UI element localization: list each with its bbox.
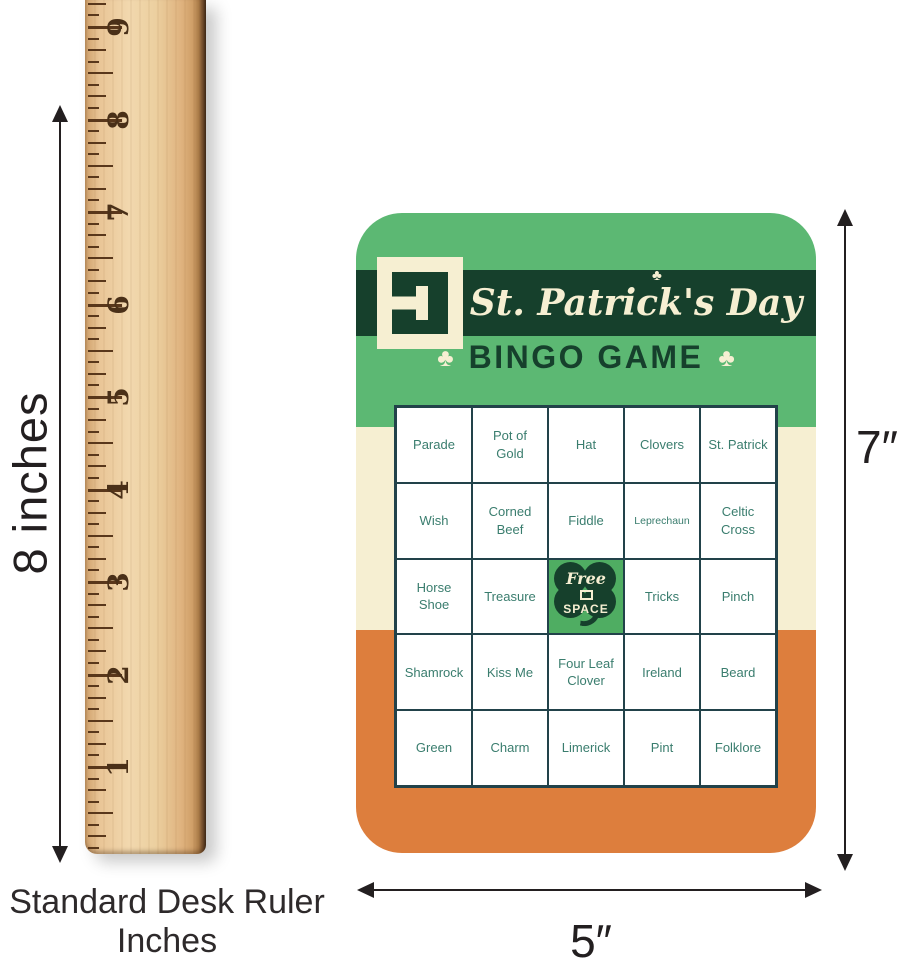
wooden-ruler: 123456789 — [85, 0, 206, 854]
ruler-tick — [88, 49, 106, 51]
bingo-card: St. Patrick's Day ♣ ♣ BINGO GAME ♣ Parad… — [356, 213, 816, 853]
shamrock-icon: ♣ — [652, 267, 662, 284]
free-space-cell: FreeSPACE — [548, 559, 624, 635]
ruler-tick — [88, 789, 106, 791]
ruler-tick — [88, 442, 113, 444]
ruler-tick — [88, 835, 106, 837]
ruler-inch-number: 4 — [101, 468, 137, 512]
ruler-caption: Standard Desk Ruler Inches — [0, 883, 334, 961]
ruler-tick — [88, 743, 106, 745]
ruler-tick — [88, 477, 99, 479]
arrowhead-right-icon — [805, 882, 822, 898]
bingo-cell: Limerick — [548, 710, 624, 786]
ruler-tick — [88, 419, 106, 421]
bingo-cell: Four Leaf Clover — [548, 634, 624, 710]
bingo-cell: Ireland — [624, 634, 700, 710]
ruler-tick — [88, 801, 99, 803]
card-width-label: 5″ — [549, 914, 633, 968]
bingo-cell: Pint — [624, 710, 700, 786]
bingo-cell: Parade — [396, 407, 472, 483]
ruler-tick — [88, 639, 99, 641]
ruler-tick — [88, 84, 99, 86]
card-width-arrow-line — [372, 889, 806, 891]
ruler-tick — [88, 153, 99, 155]
bingo-cell: Corned Beef — [472, 483, 548, 559]
ruler-tick — [88, 454, 99, 456]
bingo-cell: Charm — [472, 710, 548, 786]
ruler-tick — [88, 754, 99, 756]
ruler-tick — [88, 500, 99, 502]
ruler-tick — [88, 130, 99, 132]
ruler-tick — [88, 731, 99, 733]
ruler-tick — [88, 812, 113, 814]
card-title: St. Patrick's Day — [460, 270, 812, 336]
ruler-tick — [88, 685, 99, 687]
ruler-tick — [88, 107, 99, 109]
free-space-line2: SPACE — [563, 601, 608, 617]
ruler-tick — [88, 292, 99, 294]
ruler-inch-number: 1 — [101, 745, 137, 789]
card-height-arrow-line — [844, 224, 846, 856]
bingo-grid: ParadePot of GoldHatCloversSt. PatrickWi… — [394, 405, 778, 788]
ruler-inch-number: 2 — [101, 653, 137, 697]
bingo-cell: Pot of Gold — [472, 407, 548, 483]
ruler-tick — [88, 350, 113, 352]
ruler-tick — [88, 604, 106, 606]
ruler-tick — [88, 61, 99, 63]
mini-buckle-icon — [580, 590, 593, 600]
ruler-inch-number: 5 — [101, 375, 137, 419]
ruler-tick — [88, 14, 99, 16]
ruler-tick — [88, 569, 99, 571]
ruler-tick — [88, 3, 106, 5]
ruler-tick — [88, 778, 99, 780]
ruler-tick — [88, 165, 113, 167]
ruler-tick — [88, 408, 99, 410]
ruler-tick — [88, 234, 106, 236]
ruler-tick — [88, 720, 113, 722]
ruler-tick — [88, 223, 99, 225]
ruler-height-label: 8 inches — [3, 391, 58, 574]
bingo-cell: Leprechaun — [624, 483, 700, 559]
ruler-tick — [88, 373, 106, 375]
ruler-inch-number: 8 — [101, 98, 137, 142]
ruler-inch-number: 3 — [101, 560, 137, 604]
ruler-tick — [88, 315, 99, 317]
ruler-tick — [88, 95, 106, 97]
bingo-cell: Shamrock — [396, 634, 472, 710]
ruler-tick — [88, 535, 113, 537]
ruler-tick — [88, 546, 99, 548]
ruler-tick — [88, 257, 113, 259]
ruler-tick — [88, 280, 106, 282]
bingo-cell: Beard — [700, 634, 776, 710]
ruler-tick — [88, 176, 99, 178]
ruler-inch-number: 6 — [101, 283, 137, 327]
ruler-tick — [88, 38, 99, 40]
ruler-caption-line1: Standard Desk Ruler — [0, 883, 334, 922]
ruler-tick — [88, 246, 99, 248]
ruler-tick — [88, 199, 99, 201]
ruler-tick — [88, 847, 99, 849]
arrowhead-left-icon — [357, 882, 374, 898]
bingo-cell: Tricks — [624, 559, 700, 635]
subtitle-row: ♣ BINGO GAME ♣ — [356, 337, 816, 377]
clover-icon: FreeSPACE — [555, 562, 617, 630]
ruler-tick — [88, 558, 106, 560]
ruler-tick — [88, 338, 99, 340]
card-subtitle: BINGO GAME — [469, 339, 704, 376]
bingo-cell: Folklore — [700, 710, 776, 786]
card-height-label: 7″ — [856, 420, 898, 474]
ruler-tick — [88, 72, 113, 74]
ruler-inch-number: 7 — [101, 190, 137, 234]
shamrock-icon: ♣ — [718, 342, 734, 373]
arrowhead-up-icon — [837, 209, 853, 226]
bingo-cell: Fiddle — [548, 483, 624, 559]
arrowhead-down-icon — [837, 854, 853, 871]
ruler-tick — [88, 523, 99, 525]
ruler-tick — [88, 384, 99, 386]
bingo-cell: Celtic Cross — [700, 483, 776, 559]
ruler-tick — [88, 361, 99, 363]
ruler-caption-line2: Inches — [0, 922, 334, 961]
ruler-tick — [88, 431, 99, 433]
arrowhead-up-icon — [52, 105, 68, 122]
arrowhead-down-icon — [52, 846, 68, 863]
ruler-tick — [88, 662, 99, 664]
ruler-tick — [88, 650, 106, 652]
bingo-cell: Pinch — [700, 559, 776, 635]
bingo-cell: St. Patrick — [700, 407, 776, 483]
bingo-cell: Green — [396, 710, 472, 786]
belt-buckle-icon — [377, 257, 463, 349]
ruler-height-arrow-line — [59, 120, 61, 848]
shamrock-icon: ♣ — [437, 342, 453, 373]
buckle-prong-bar — [392, 297, 418, 310]
ruler-tick — [88, 627, 113, 629]
bingo-cell: Clovers — [624, 407, 700, 483]
ruler-tick — [88, 188, 106, 190]
ruler-tick — [88, 269, 99, 271]
bingo-cell: Horse Shoe — [396, 559, 472, 635]
ruler-tick — [88, 708, 99, 710]
ruler-tick — [88, 593, 99, 595]
bingo-cell: Wish — [396, 483, 472, 559]
ruler-tick — [88, 824, 99, 826]
bingo-cell: Kiss Me — [472, 634, 548, 710]
ruler-inch-number: 9 — [101, 5, 137, 49]
bingo-cell: Treasure — [472, 559, 548, 635]
buckle-prong-tip — [416, 286, 428, 320]
ruler-tick — [88, 616, 99, 618]
free-space-text: FreeSPACE — [555, 562, 617, 622]
bingo-cell: Hat — [548, 407, 624, 483]
free-space-line1: Free — [566, 568, 606, 590]
ruler-tick — [88, 465, 106, 467]
